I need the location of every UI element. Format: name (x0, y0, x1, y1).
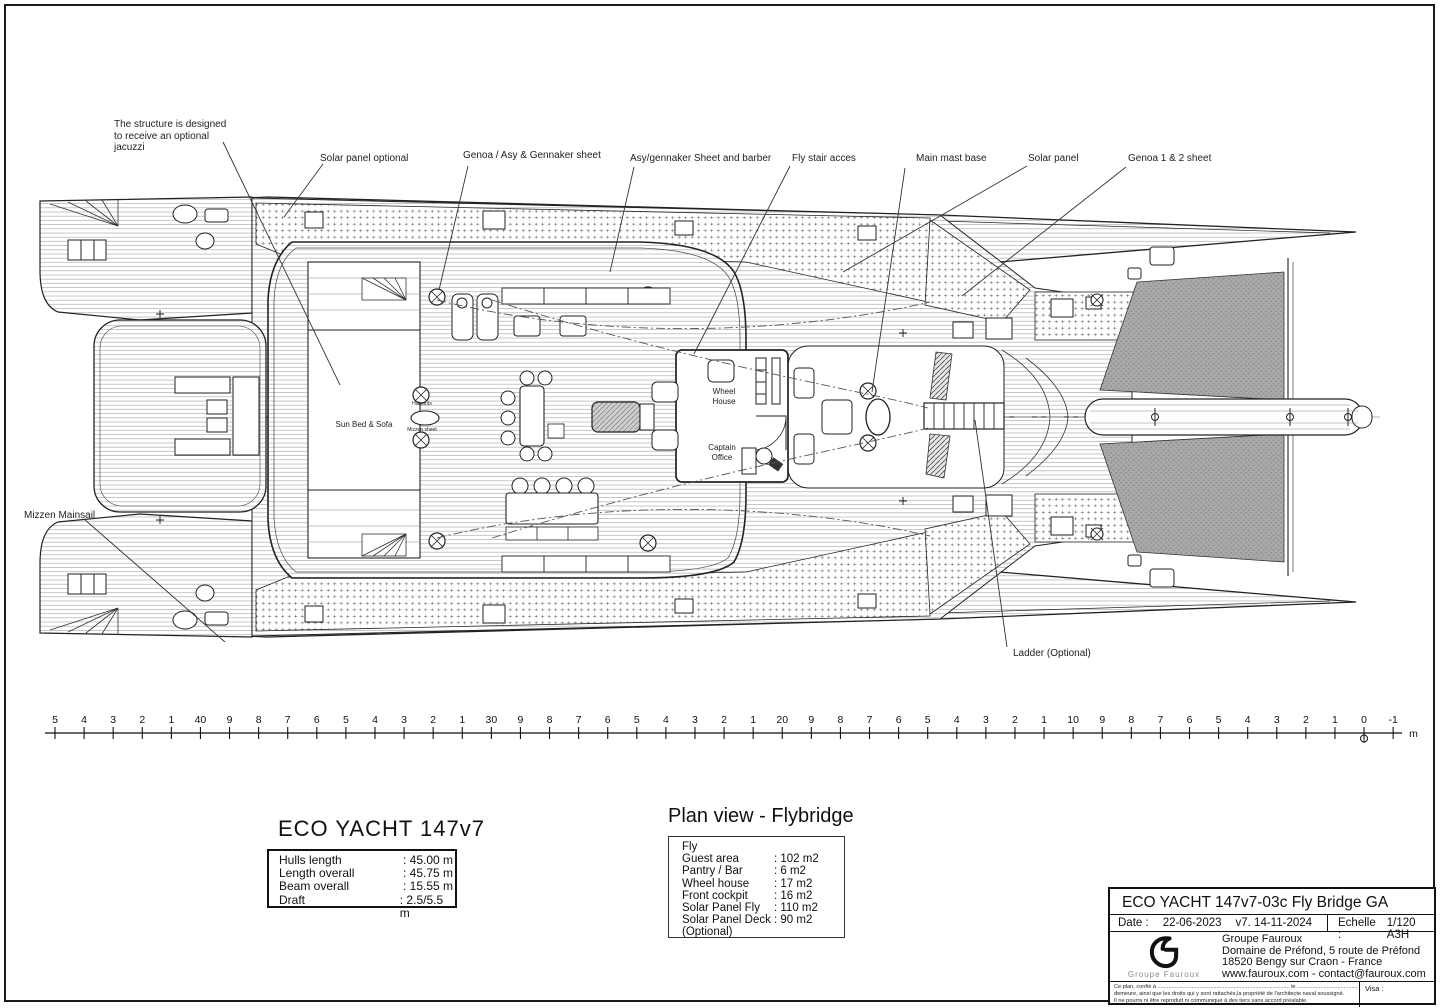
svg-text:6: 6 (314, 714, 320, 726)
label-wheel-house: Wheel House (704, 387, 744, 406)
svg-text:40: 40 (195, 714, 207, 726)
callout-main-mast-base: Main mast base (916, 153, 987, 165)
dimensions-table: Hulls length: 45.00 mLength overall: 45.… (267, 849, 457, 908)
svg-text:3: 3 (110, 714, 116, 726)
svg-text:2: 2 (1303, 714, 1309, 726)
callout-solar-panel-optional: Solar panel optional (320, 153, 408, 165)
spec-row: Solar Panel Fly: 110 m2 (682, 902, 844, 914)
label-mizzen-sheet: Mizzen sheet (398, 427, 446, 433)
svg-text:2: 2 (1012, 714, 1018, 726)
spec-row: (Optional) (682, 926, 844, 938)
svg-text:10: 10 (1067, 714, 1079, 726)
version-value: v7. 14-11-2024 (1236, 917, 1313, 931)
svg-text:30: 30 (486, 714, 498, 726)
yacht-name-title: ECO YACHT 147v7 (278, 816, 485, 842)
label-sun-bed-sofa: Sun Bed & Sofa (328, 420, 400, 429)
svg-text:5: 5 (1216, 714, 1222, 726)
date-value: 22-06-2023 (1163, 917, 1222, 931)
svg-text:5: 5 (343, 714, 349, 726)
svg-text:20: 20 (776, 714, 788, 726)
callout-ladder-optional: Ladder (Optional) (1013, 648, 1091, 660)
svg-text:5: 5 (925, 714, 931, 726)
svg-text:7: 7 (576, 714, 582, 726)
logo-caption: Groupe Fauroux (1110, 970, 1218, 979)
svg-text:8: 8 (838, 714, 844, 726)
svg-text:m: m (1409, 728, 1418, 740)
spec-row: Wheel house: 17 m2 (682, 878, 844, 890)
spec-row: Guest area: 102 m2 (682, 853, 844, 865)
leader-lines (84, 142, 1126, 647)
svg-text:3: 3 (401, 714, 407, 726)
meter-ruler: 5432140987654321309876543212098765432110… (45, 714, 1418, 743)
scale-cell: Echelle : 1/120 A3H (1328, 915, 1434, 931)
svg-text:6: 6 (896, 714, 902, 726)
groupe-fauroux-monogram-icon (1146, 934, 1182, 970)
spec-row: Pantry / Bar: 6 m2 (682, 865, 844, 877)
svg-text:5: 5 (52, 714, 58, 726)
svg-text:1: 1 (1041, 714, 1047, 726)
svg-text:7: 7 (1157, 714, 1163, 726)
label-captain-office: Captain Office (700, 443, 744, 462)
spec-row: Solar Panel Deck: 90 m2 (682, 914, 844, 926)
svg-text:0: 0 (1361, 714, 1367, 726)
callout-solar-panel: Solar panel (1028, 153, 1079, 165)
callout-jacuzzi: The structure is designed to receive an … (114, 119, 232, 154)
svg-text:1: 1 (459, 714, 465, 726)
svg-text:8: 8 (1128, 714, 1134, 726)
svg-text:7: 7 (867, 714, 873, 726)
company-address: Groupe Fauroux Domaine de Préfond, 5 rou… (1218, 932, 1434, 981)
svg-text:2: 2 (430, 714, 436, 726)
company-web: www.fauroux.com - contact@fauroux.com (1222, 969, 1434, 981)
date-cell: Date : 22-06-2023 v7. 14-11-2024 (1110, 915, 1328, 931)
scale-label: Echelle : (1338, 917, 1377, 931)
company-name: Groupe Fauroux (1222, 934, 1434, 946)
svg-text:1: 1 (1332, 714, 1338, 726)
title-block: ECO YACHT 147v7-03c Fly Bridge GA Date :… (1108, 887, 1436, 1005)
callout-genoa-asy-gennaker-sheet: Genoa / Asy & Gennaker sheet (463, 150, 601, 162)
legal-text: Ce plan, confié à ......................… (1110, 982, 1360, 1007)
spec-row: Front cockpit: 16 m2 (682, 890, 844, 902)
svg-text:6: 6 (605, 714, 611, 726)
svg-text:3: 3 (1274, 714, 1280, 726)
spec-row: Beam overall: 15.55 m (279, 880, 455, 893)
visa-cell: Visa : (1360, 982, 1434, 1007)
svg-text:9: 9 (518, 714, 524, 726)
svg-text:4: 4 (663, 714, 669, 726)
svg-text:2: 2 (721, 714, 727, 726)
svg-text:3: 3 (983, 714, 989, 726)
callout-mizzen-mainsail: Mizzen Mainsail (24, 510, 95, 522)
svg-text:4: 4 (372, 714, 378, 726)
svg-text:1: 1 (168, 714, 174, 726)
company-logo: Groupe Fauroux (1110, 932, 1218, 981)
svg-text:9: 9 (1099, 714, 1105, 726)
svg-text:5: 5 (634, 714, 640, 726)
svg-text:6: 6 (1187, 714, 1193, 726)
svg-text:7: 7 (285, 714, 291, 726)
svg-text:1: 1 (750, 714, 756, 726)
spec-row: Draft: 2.5/5.5 m (279, 894, 455, 920)
spec-row: Fly (682, 841, 844, 853)
company-row: Groupe Fauroux Groupe Fauroux Domaine de… (1110, 932, 1434, 982)
svg-text:8: 8 (256, 714, 262, 726)
callout-genoa-1-2-sheet: Genoa 1 & 2 sheet (1128, 153, 1211, 165)
svg-text:3: 3 (692, 714, 698, 726)
svg-text:2: 2 (139, 714, 145, 726)
svg-text:4: 4 (1245, 714, 1251, 726)
svg-text:-1: -1 (1388, 714, 1397, 726)
drawing-title: ECO YACHT 147v7-03c Fly Bridge GA (1110, 889, 1434, 915)
label-halyards: Halyards (404, 401, 440, 407)
drawing-sheet: 5432140987654321309876543212098765432110… (0, 0, 1441, 1008)
plan-view-title: Plan view - Flybridge (668, 805, 854, 828)
callout-asy-gennaker-sheet-barber: Asy/gennaker Sheet and barber (630, 153, 771, 165)
scale-value: 1/120 A3H (1387, 917, 1434, 931)
areas-table: FlyGuest area: 102 m2Pantry / Bar: 6 m2W… (668, 836, 845, 938)
callout-fly-stair-acces: Fly stair acces (792, 153, 856, 165)
svg-text:9: 9 (227, 714, 233, 726)
svg-text:8: 8 (547, 714, 553, 726)
date-label: Date : (1118, 917, 1149, 931)
svg-text:9: 9 (808, 714, 814, 726)
title-block-meta-row: Date : 22-06-2023 v7. 14-11-2024 Echelle… (1110, 915, 1434, 932)
legal-row: Ce plan, confié à ......................… (1110, 982, 1434, 1007)
svg-text:4: 4 (954, 714, 960, 726)
svg-text:4: 4 (81, 714, 87, 726)
